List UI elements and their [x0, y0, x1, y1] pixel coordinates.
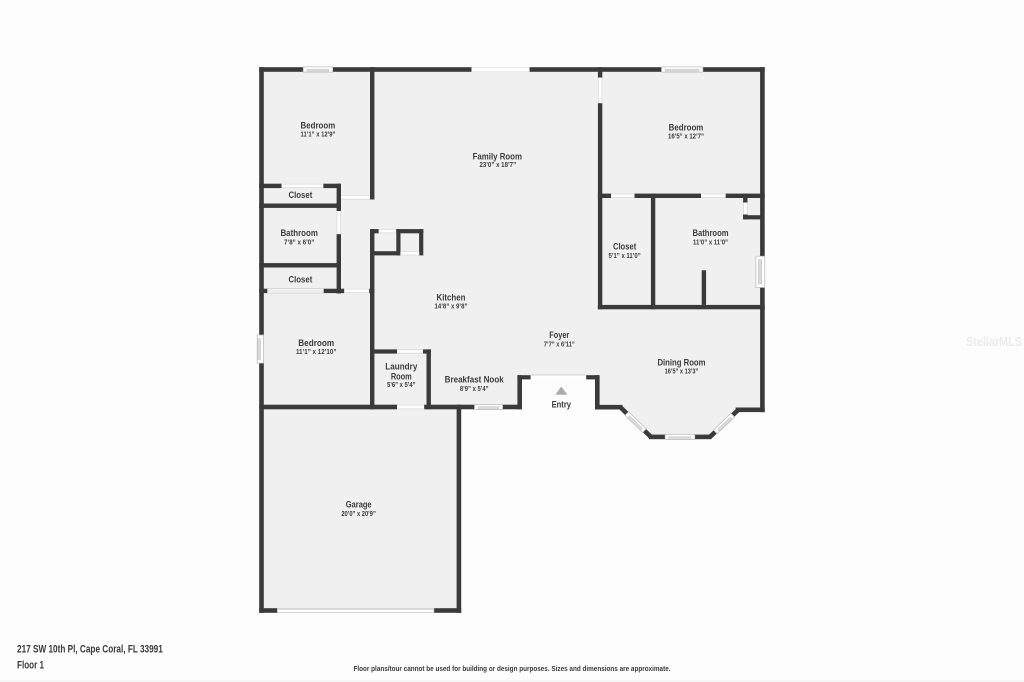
svg-text:Bathroom: Bathroom [280, 228, 318, 238]
svg-text:Breakfast Nook: Breakfast Nook [445, 375, 505, 385]
svg-text:Closet: Closet [289, 275, 313, 285]
svg-text:11’1” x 12’10”: 11’1” x 12’10” [296, 349, 337, 356]
svg-text:11’1” x 12’9”: 11’1” x 12’9” [301, 131, 336, 138]
svg-text:5’6” x 5’4”: 5’6” x 5’4” [387, 382, 416, 389]
svg-text:14’8” x 9’8”: 14’8” x 9’8” [435, 303, 468, 310]
svg-text:Garage: Garage [346, 499, 372, 509]
svg-text:Closet: Closet [613, 242, 636, 252]
svg-text:Bedroom: Bedroom [298, 338, 334, 348]
svg-text:23’0” x 18’7”: 23’0” x 18’7” [479, 162, 516, 169]
svg-text:Entry: Entry [552, 400, 571, 410]
svg-text:Closet: Closet [289, 190, 313, 200]
svg-text:7’7” x 6’11”: 7’7” x 6’11” [544, 341, 575, 348]
svg-text:7’8” x 6’0”: 7’8” x 6’0” [284, 239, 314, 246]
svg-text:5’1” x 11’0”: 5’1” x 11’0” [609, 253, 641, 260]
svg-text:Dining Room: Dining Room [657, 357, 705, 367]
svg-text:Bedroom: Bedroom [669, 123, 704, 133]
svg-text:16’5” x 12’7”: 16’5” x 12’7” [668, 134, 704, 141]
svg-text:8’9” x 5’4”: 8’9” x 5’4” [460, 386, 489, 393]
svg-text:Foyer: Foyer [549, 330, 569, 340]
svg-text:Bedroom: Bedroom [301, 120, 336, 130]
svg-text:11’0” x 11’0”: 11’0” x 11’0” [693, 239, 728, 246]
svg-text:217 SW 10th Pl, Cape Coral, FL: 217 SW 10th Pl, Cape Coral, FL 33991 [17, 644, 163, 656]
svg-text:Kitchen: Kitchen [437, 292, 466, 302]
svg-text:16’5” x 13’3”: 16’5” x 13’3” [665, 369, 699, 376]
svg-text:Room: Room [391, 372, 412, 382]
svg-text:Family Room: Family Room [473, 151, 522, 161]
svg-text:20’0” x 20’9”: 20’0” x 20’9” [341, 511, 376, 518]
svg-text:Floor plans/tour cannot be use: Floor plans/tour cannot be used for buil… [354, 666, 671, 673]
svg-text:StellarMLS: StellarMLS [966, 334, 1022, 349]
svg-text:Bathroom: Bathroom [693, 228, 729, 238]
svg-text:Floor 1: Floor 1 [17, 659, 44, 671]
svg-text:Laundry: Laundry [385, 361, 417, 371]
